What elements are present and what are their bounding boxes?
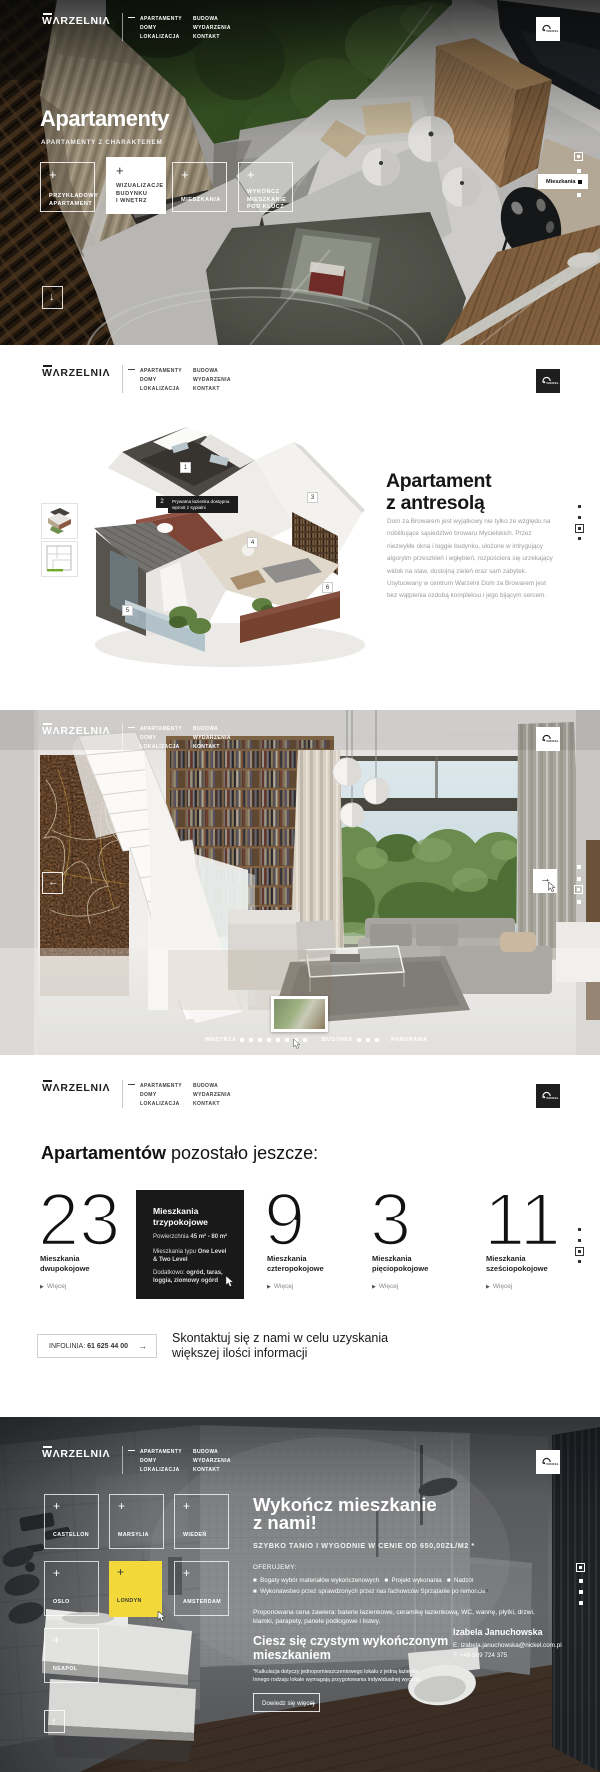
svg-text:NICKEL: NICKEL	[547, 29, 559, 33]
svg-text:NICKEL: NICKEL	[547, 1096, 559, 1100]
svg-text:NICKEL: NICKEL	[547, 739, 559, 743]
svg-text:NICKEL: NICKEL	[547, 381, 559, 385]
svg-text:NICKEL: NICKEL	[547, 1462, 559, 1466]
